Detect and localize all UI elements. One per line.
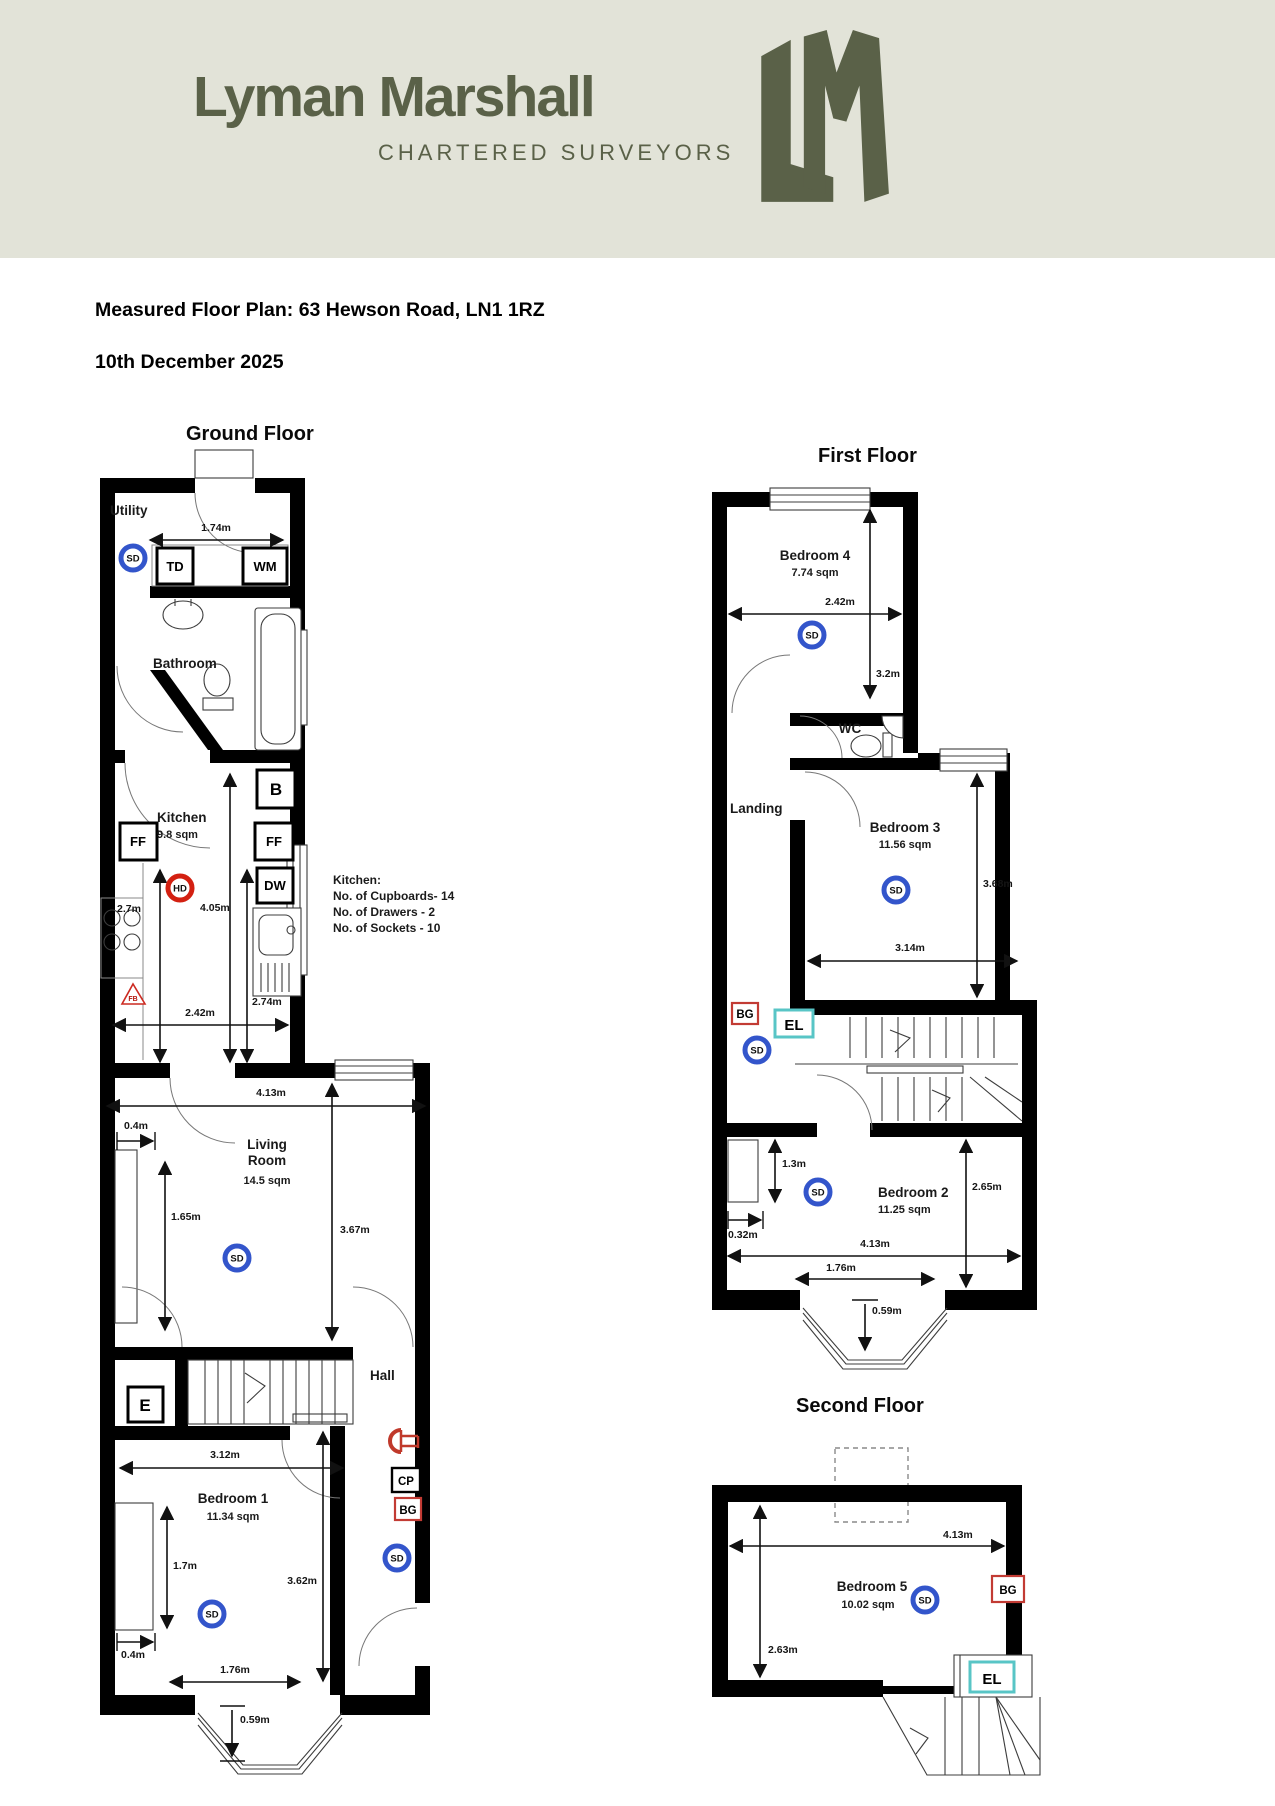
kitchen-sink xyxy=(253,908,301,996)
el-box: EL xyxy=(970,1662,1014,1692)
bg-box: BG xyxy=(732,1003,758,1024)
smoke-detector-icon: SD xyxy=(800,623,824,647)
detector-label: HD xyxy=(173,884,187,895)
smoke-detector-icon: SD xyxy=(225,1246,249,1270)
dimension: 1.65m xyxy=(165,1162,201,1330)
heat-detector-icon: HD xyxy=(168,876,192,900)
room-area-bedroom4: 7.74 sqm xyxy=(791,567,838,579)
dimension-label: 0.32m xyxy=(728,1229,758,1241)
dimension-label: 1.3m xyxy=(782,1158,806,1170)
dimension-label: 3.12m xyxy=(210,1449,240,1461)
dimension-label: 4.13m xyxy=(256,1087,286,1099)
room-label-hall: Hall xyxy=(370,1368,395,1383)
room-area-bedroom1: 11.34 sqm xyxy=(207,1511,260,1523)
smoke-detector-icon: SD xyxy=(745,1038,769,1062)
smoke-detector-icon: SD xyxy=(385,1546,409,1570)
box-label: FB xyxy=(128,996,137,1003)
room-area-bedroom5: 10.02 sqm xyxy=(841,1599,894,1611)
smoke-detector-icon: SD xyxy=(913,1588,937,1612)
dimension: 0.32m xyxy=(728,1211,763,1241)
dimension-label: 2.74m xyxy=(252,996,282,1008)
dimension: 1.7m xyxy=(167,1507,197,1628)
dimension: 2.65m xyxy=(966,1140,1002,1287)
dimension-label: 4.05m xyxy=(200,902,230,914)
dimension-label: 2.63m xyxy=(768,1644,798,1656)
header-band: Lyman Marshall CHARTERED SURVEYORS xyxy=(0,0,1275,258)
room-area-bedroom3: 11.56 sqm xyxy=(879,839,932,851)
sofa xyxy=(115,1150,137,1323)
lm-monogram-icon xyxy=(745,30,915,210)
smoke-detector-icon: SD xyxy=(200,1602,224,1626)
detector-label: SD xyxy=(811,1188,824,1199)
fridge-freezer-box: FF xyxy=(120,823,157,860)
bay-window xyxy=(198,1713,342,1774)
document-date: 10th December 2025 xyxy=(95,351,284,374)
dimension-label: 3.67m xyxy=(340,1224,370,1236)
detector-label: SD xyxy=(205,1610,218,1621)
detector-label: SD xyxy=(126,554,139,565)
wardrobe xyxy=(115,1503,153,1630)
dimension: 2.42m xyxy=(729,596,901,614)
dimension: 4.13m xyxy=(730,1529,1004,1546)
dimension: 4.13m xyxy=(107,1087,425,1106)
bathtub xyxy=(255,608,301,750)
dimension: 0.4m xyxy=(117,1633,155,1661)
room-label-bathroom: Bathroom xyxy=(153,656,217,671)
box-label: EL xyxy=(784,1017,803,1034)
dimension-label: 3.14m xyxy=(895,942,925,954)
detector-label: SD xyxy=(750,1046,763,1057)
dimension-label: 3.2m xyxy=(876,668,900,680)
dimension-label: 2.7m xyxy=(117,903,141,915)
box-label: DW xyxy=(264,878,286,893)
tumble-dryer-box: TD xyxy=(157,548,193,584)
el-box: EL xyxy=(775,1010,813,1037)
bay-window xyxy=(803,1308,947,1369)
box-label: EL xyxy=(982,1671,1001,1688)
dimension-label: 4.13m xyxy=(860,1238,890,1250)
dimension-label: 1.76m xyxy=(826,1262,856,1274)
room-label-landing: Landing xyxy=(730,801,783,816)
box-label: B xyxy=(270,780,282,799)
dimension: 1.74m xyxy=(150,522,283,540)
box-label: E xyxy=(139,1396,150,1415)
room-label-utility: Utility xyxy=(110,503,148,518)
bg-box: BG xyxy=(395,1498,421,1520)
dimension: 1.76m xyxy=(796,1262,934,1279)
dimension: 2.63m xyxy=(760,1506,798,1677)
dimension-label: 1.65m xyxy=(171,1211,201,1223)
detector-label: SD xyxy=(805,631,818,642)
dimension-label: 1.76m xyxy=(220,1664,250,1676)
dimension: 3.2m xyxy=(870,510,900,698)
utility-sink xyxy=(163,599,203,629)
fuse-board-icon: FB xyxy=(122,984,145,1004)
toilet xyxy=(851,733,892,757)
room-label-bedroom5: Bedroom 5 xyxy=(837,1579,908,1594)
dimension-label: 2.65m xyxy=(972,1181,1002,1193)
wardrobe xyxy=(728,1140,758,1202)
dishwasher-box: DW xyxy=(257,868,293,903)
dimension-label: 2.42m xyxy=(825,596,855,608)
brand-tagline: CHARTERED SURVEYORS xyxy=(378,140,734,166)
dimension: 0.59m xyxy=(852,1300,902,1350)
dimension-label: 4.13m xyxy=(943,1529,973,1541)
dimension-label: 0.4m xyxy=(124,1120,148,1132)
smoke-detector-icon: SD xyxy=(806,1180,830,1204)
dimension-label: 1.74m xyxy=(201,522,231,534)
room-label-living: Living xyxy=(247,1137,287,1152)
dimension-label: 1.7m xyxy=(173,1560,197,1572)
dimension-label: 0.4m xyxy=(121,1649,145,1661)
washing-machine-box: WM xyxy=(243,548,287,584)
box-label: WM xyxy=(253,559,276,574)
document-page: Lyman Marshall CHARTERED SURVEYORS Measu… xyxy=(0,0,1275,1806)
dimension: 2.7m xyxy=(117,870,160,1062)
dimension-label: 3.62m xyxy=(287,1575,317,1587)
dimension: 3.62m xyxy=(287,1432,323,1681)
dimension: 1.3m xyxy=(775,1140,806,1202)
detector-label: SD xyxy=(230,1254,243,1265)
staircase xyxy=(795,1017,1022,1121)
second-floor-plan: EL BG 4.13m 2.63m SD Bedroom 5 10.02 sqm xyxy=(700,1390,1045,1806)
room-label-bedroom4: Bedroom 4 xyxy=(780,548,851,563)
box-label: BG xyxy=(399,1505,416,1517)
boiler-box: B xyxy=(257,770,295,808)
dimension: 3.14m xyxy=(808,942,1017,961)
detector-label: SD xyxy=(390,1554,403,1565)
staircase xyxy=(188,1360,353,1424)
dimension-label: 0.59m xyxy=(872,1305,902,1317)
box-label: FF xyxy=(130,834,146,849)
detector-label: SD xyxy=(918,1596,931,1607)
dimension: 1.76m xyxy=(170,1664,300,1682)
dimension: 2.42m xyxy=(113,1007,288,1025)
room-label-kitchen: Kitchen xyxy=(157,810,207,825)
dimension: 3.12m xyxy=(120,1449,343,1468)
box-label: BG xyxy=(999,1585,1016,1597)
fridge-freezer-box: FF xyxy=(255,823,293,860)
smoke-detector-icon: SD xyxy=(884,878,908,902)
meter-icon xyxy=(390,1430,418,1452)
room-label-bedroom2: Bedroom 2 xyxy=(878,1185,949,1200)
electric-meter-box: E xyxy=(128,1387,163,1422)
room-area-bedroom2: 11.25 sqm xyxy=(878,1204,931,1216)
dimension-label: 3.68m xyxy=(983,878,1013,890)
staircase xyxy=(883,1697,1040,1775)
dimension: 4.13m xyxy=(728,1238,1020,1256)
bg-box: BG xyxy=(992,1576,1024,1602)
dimension-label: 2.42m xyxy=(185,1007,215,1019)
box-label: BG xyxy=(736,1009,753,1021)
dimension-label: 0.59m xyxy=(240,1714,270,1726)
box-label: TD xyxy=(166,559,183,574)
box-label: FF xyxy=(266,834,282,849)
room-label-living: Room xyxy=(248,1153,286,1168)
detector-label: SD xyxy=(889,886,902,897)
first-floor-plan: 2.42m 3.2m 3.68m 3.14m 1.3m 0.32m 2.65m … xyxy=(700,430,1045,1370)
box-label: CP xyxy=(398,1476,414,1488)
smoke-detector-icon: SD xyxy=(121,546,145,570)
cp-box: CP xyxy=(392,1468,420,1492)
room-area-kitchen: 9.8 sqm xyxy=(157,829,198,841)
room-label-wc: WC xyxy=(839,721,862,736)
room-area-living: 14.5 sqm xyxy=(243,1175,290,1187)
dimension: 0.4m xyxy=(117,1120,155,1150)
room-label-bedroom3: Bedroom 3 xyxy=(870,820,941,835)
ground-floor-plan: 1.74m 2.7m 4.05m 2.74m 2.42m 4.13m 0.4m … xyxy=(95,418,440,1798)
window xyxy=(287,630,413,1080)
dimension: 3.67m xyxy=(332,1084,370,1340)
room-label-bedroom1: Bedroom 1 xyxy=(198,1491,269,1506)
brand-name: Lyman Marshall xyxy=(193,64,594,130)
document-title: Measured Floor Plan: 63 Hewson Road, LN1… xyxy=(95,299,545,322)
